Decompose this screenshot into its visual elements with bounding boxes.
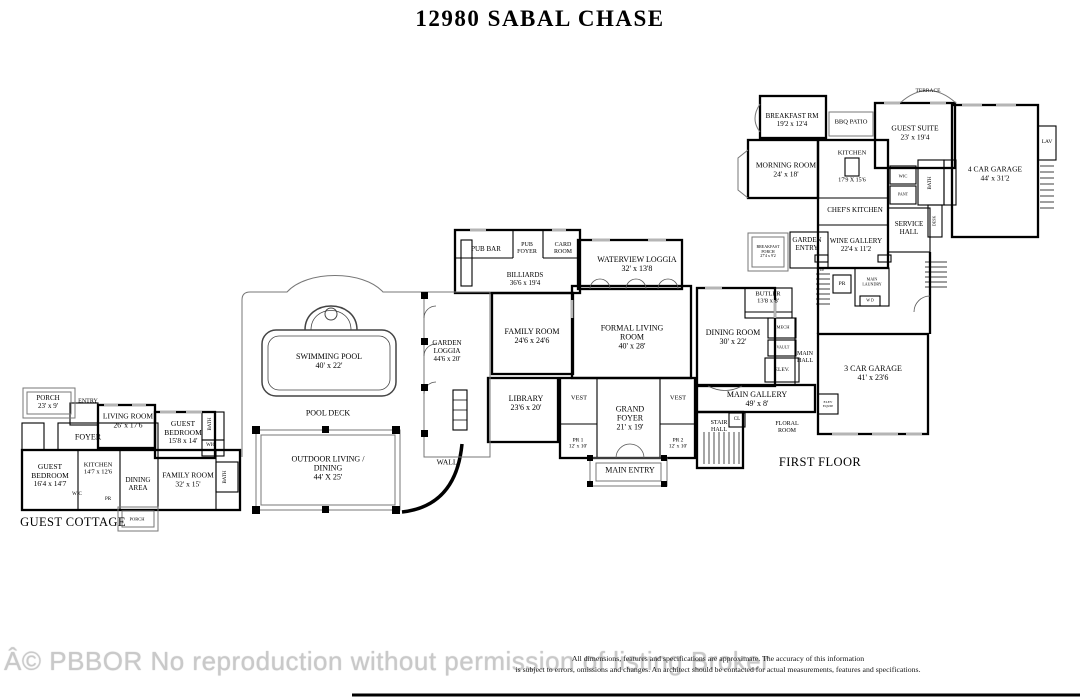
room-name: WIC bbox=[72, 492, 82, 498]
room-name: WATERVIEW LOGGIA bbox=[577, 255, 697, 264]
room-label-bath-cottage-1: BATH bbox=[208, 417, 214, 430]
room-dims: 24'6 x 24'6 bbox=[492, 336, 572, 345]
room-dims: 40' x 22' bbox=[279, 361, 379, 370]
room-name: KITCHEN bbox=[75, 462, 121, 469]
room-name: FLORAL ROOM bbox=[767, 421, 807, 435]
room-name: PORCH bbox=[129, 516, 144, 521]
room-name: CARD ROOM bbox=[548, 242, 578, 256]
room-label-wic-cottage: WIC bbox=[72, 492, 82, 498]
room-name: PR bbox=[105, 497, 111, 503]
room-label-main-laundry: MAIN LAUNDRY bbox=[858, 277, 886, 286]
room-name: W D bbox=[866, 299, 874, 304]
room-name: GUEST BEDROOM bbox=[158, 420, 208, 437]
room-name: OUTDOOR LIVING / DINING bbox=[283, 454, 373, 472]
room-name: BBQ PATIO bbox=[827, 118, 875, 125]
room-label-wall: WALL bbox=[437, 459, 458, 468]
room-dims: 36'6 x 19'4 bbox=[485, 280, 565, 288]
room-label-breakfast-rm: BREAKFAST RM19'2 x 12'4 bbox=[754, 113, 830, 129]
room-name: BATH bbox=[208, 417, 214, 430]
room-name: FORMAL LIVING ROOM bbox=[592, 323, 672, 341]
room-label-wd: W D bbox=[866, 299, 874, 304]
room-label-dining-area: DINING AREA bbox=[117, 477, 159, 493]
room-label-desk: DESK bbox=[933, 216, 938, 226]
room-label-chefs-kitchen: CHEF'S KITCHEN bbox=[810, 207, 900, 215]
room-label-wic-main: WIC bbox=[899, 173, 908, 178]
room-name: KITCHEN bbox=[825, 149, 879, 156]
room-name: VEST bbox=[571, 394, 587, 401]
room-label-breakfast-porch: BREAKFAST PORCH27'4 x 9'2 bbox=[751, 245, 785, 259]
room-label-garden-entry: GARDEN ENTRY bbox=[786, 237, 828, 253]
room-name: GARDEN ENTRY bbox=[786, 237, 828, 253]
room-name: FOYER bbox=[58, 432, 118, 441]
disclaimer-line2: is subject to errors, omissions and chan… bbox=[338, 665, 1080, 674]
room-name: CHEF'S KITCHEN bbox=[810, 207, 900, 215]
room-label-outdoor-living: OUTDOOR LIVING / DINING44' X 25' bbox=[283, 454, 373, 481]
room-label-pr1: PR 112' x 10' bbox=[561, 438, 595, 451]
room-label-pr-cottage: PR bbox=[105, 497, 111, 503]
room-name: PUB BAR bbox=[456, 246, 516, 254]
room-dims: 23' x 19'4 bbox=[883, 133, 947, 142]
room-dims: 44'6 x 20' bbox=[420, 356, 474, 364]
room-label-guest-bedroom-2: GUEST BEDROOM16'4 x 14'7 bbox=[24, 463, 76, 489]
room-label-living-room: LIVING ROOM26' x 17'6 bbox=[96, 412, 160, 429]
room-name: BATH bbox=[928, 176, 934, 189]
room-label-terrace: TERRACE bbox=[915, 88, 940, 94]
room-label-kitchen-main: KITCHEN bbox=[825, 149, 879, 156]
room-dims: 27'4 x 9'2 bbox=[751, 254, 785, 259]
room-label-wine-gallery: WINE GALLERY22'4 x 11'2 bbox=[823, 238, 889, 254]
room-label-lav: LAV bbox=[1042, 139, 1053, 145]
room-label-formal-living: FORMAL LIVING ROOM40' x 28' bbox=[592, 323, 672, 350]
room-name: CL bbox=[734, 417, 740, 423]
room-label-cl: CL bbox=[734, 417, 740, 423]
room-label-mech: MECH bbox=[776, 324, 789, 329]
room-label-bbq-patio: BBQ PATIO bbox=[827, 118, 875, 125]
room-name: GUEST BEDROOM bbox=[24, 463, 76, 480]
room-name: GARDEN LOGGIA bbox=[420, 340, 474, 356]
room-label-pr2: PR 212' x 10' bbox=[661, 438, 695, 451]
room-label-card-room: CARD ROOM bbox=[548, 242, 578, 256]
first-floor-label: FIRST FLOOR bbox=[779, 455, 861, 469]
room-label-elev: ELEV. bbox=[775, 367, 790, 373]
disclaimer-line1: All dimensions, features and specificati… bbox=[338, 654, 1080, 663]
room-name: BATH bbox=[223, 470, 229, 483]
room-dims: 30' x 22' bbox=[699, 337, 767, 346]
room-dims: 22'4 x 11'2 bbox=[823, 246, 889, 254]
floor-plan-walls bbox=[0, 0, 1080, 699]
room-label-wic-cottage-right: WIC bbox=[206, 443, 216, 449]
room-label-garage4: 4 CAR GARAGE44' x 31'2 bbox=[961, 165, 1029, 182]
room-name: PR bbox=[839, 281, 846, 287]
room-label-morning-room: MORNING ROOM24' x 18' bbox=[747, 161, 825, 178]
room-name: ENTRY bbox=[70, 399, 106, 406]
room-name: ELEV. bbox=[775, 367, 790, 373]
room-name: 3 CAR GARAGE bbox=[833, 364, 913, 373]
room-label-porch-cottage: PORCH23' x 9' bbox=[21, 395, 75, 411]
room-name: MAIN ENTRY bbox=[595, 465, 665, 474]
room-label-library: LIBRARY23'6 x 20' bbox=[491, 394, 561, 412]
room-label-main-gallery: MAIN GALLERY49' x 8' bbox=[712, 390, 802, 408]
room-name: MAIN HALL bbox=[790, 351, 820, 365]
room-name: STAIR HALL bbox=[704, 420, 734, 434]
room-name: WIC bbox=[899, 173, 908, 178]
room-dims: 21' x 19' bbox=[605, 423, 655, 432]
room-dims: 41' x 23'6 bbox=[833, 373, 913, 382]
room-name: DESK bbox=[933, 216, 938, 226]
room-name: BUTLER bbox=[745, 291, 791, 298]
room-label-main-hall: MAIN HALL bbox=[790, 351, 820, 365]
room-dims: 40' x 28' bbox=[592, 342, 672, 351]
room-label-dining-room: DINING ROOM30' x 22' bbox=[699, 328, 767, 346]
room-name: FAMILY ROOM bbox=[492, 327, 572, 336]
room-label-grand-foyer: GRAND FOYER21' x 19' bbox=[605, 404, 655, 431]
room-label-bath-main: BATH bbox=[928, 176, 934, 189]
room-label-stair-hall: STAIR HALL bbox=[704, 420, 734, 434]
room-name: PUB FOYER bbox=[512, 242, 542, 256]
room-name: DINING ROOM bbox=[699, 328, 767, 337]
room-dims: 32' x 15' bbox=[157, 480, 219, 489]
room-label-guest-bedroom-1: GUEST BEDROOM15'8 x 14' bbox=[158, 420, 208, 446]
room-label-bath-cottage-2: BATH bbox=[223, 470, 229, 483]
room-label-butler: BUTLER13'8 x 8' bbox=[745, 291, 791, 306]
room-label-pub-foyer: PUB FOYER bbox=[512, 242, 542, 256]
room-name: MAIN LAUNDRY bbox=[858, 277, 886, 286]
room-dims: 17'9 X 15'6 bbox=[825, 178, 879, 185]
room-name: VEST bbox=[670, 394, 686, 401]
room-label-service-hall: SERVICE HALL bbox=[887, 221, 931, 237]
room-name: SWIMMING POOL bbox=[279, 352, 379, 361]
room-label-pr-main: PR bbox=[839, 281, 846, 287]
room-dims: 26' x 17'6 bbox=[96, 421, 160, 430]
room-label-family-room: FAMILY ROOM24'6 x 24'6 bbox=[492, 327, 572, 345]
floor-plan-canvas: 12980 SABAL CHASE bbox=[0, 0, 1080, 699]
room-label-kitchen-cottage: KITCHEN14'7 x 12'6 bbox=[75, 462, 121, 477]
room-dims: 16'4 x 14'7 bbox=[24, 480, 76, 489]
room-name: LAV bbox=[1042, 139, 1053, 145]
room-label-waterview-loggia: WATERVIEW LOGGIA32' x 13'8 bbox=[577, 255, 697, 273]
room-label-pool-deck: POOL DECK bbox=[288, 408, 368, 417]
room-dims: 19'2 x 12'4 bbox=[754, 121, 830, 129]
room-name: MECH bbox=[776, 324, 789, 329]
room-label-floral-room: FLORAL ROOM bbox=[767, 421, 807, 435]
room-dims: 24' x 18' bbox=[747, 170, 825, 179]
room-name: LIBRARY bbox=[491, 394, 561, 403]
room-dims: 44' x 31'2 bbox=[961, 174, 1029, 183]
room-name: WIC bbox=[206, 443, 216, 449]
room-label-elev-equip: ELEV EQUIP bbox=[819, 400, 837, 408]
room-label-kitchen-main-dims: 17'9 X 15'6 bbox=[825, 178, 879, 185]
room-dims: 49' x 8' bbox=[712, 399, 802, 408]
interior-walls bbox=[22, 126, 1056, 510]
room-label-swimming-pool: SWIMMING POOL40' x 22' bbox=[279, 352, 379, 370]
room-name: VAULT bbox=[777, 346, 790, 351]
room-label-porch-bottom: PORCH bbox=[129, 516, 144, 521]
room-label-pant: PANT bbox=[898, 193, 908, 198]
room-dims: 23' x 9' bbox=[21, 403, 75, 411]
room-label-up: UP bbox=[820, 268, 824, 272]
room-label-entry: ENTRY bbox=[70, 399, 106, 406]
room-name: GRAND FOYER bbox=[605, 404, 655, 422]
room-dims: 23'6 x 20' bbox=[491, 403, 561, 412]
room-label-guest-suite: GUEST SUITE23' x 19'4 bbox=[883, 124, 947, 141]
room-dims: 13'8 x 8' bbox=[745, 298, 791, 305]
room-dims: 12' x 10' bbox=[661, 444, 695, 450]
room-name: POOL DECK bbox=[288, 408, 368, 417]
room-label-garage3: 3 CAR GARAGE41' x 23'6 bbox=[833, 364, 913, 382]
room-name: PANT bbox=[898, 193, 908, 198]
room-label-foyer: FOYER bbox=[58, 432, 118, 441]
room-name: MAIN GALLERY bbox=[712, 390, 802, 399]
room-dims: 44' X 25' bbox=[283, 473, 373, 482]
room-label-garden-loggia: GARDEN LOGGIA44'6 x 20' bbox=[420, 340, 474, 364]
room-label-pub-bar: PUB BAR bbox=[456, 246, 516, 254]
room-name: TERRACE bbox=[915, 88, 940, 94]
guest-cottage-label: GUEST COTTAGE bbox=[20, 515, 126, 529]
room-name: WALL bbox=[437, 459, 458, 468]
room-dims: 12' x 10' bbox=[561, 444, 595, 450]
room-label-vest-left: VEST bbox=[571, 394, 587, 401]
room-label-vest-right: VEST bbox=[670, 394, 686, 401]
room-name: SERVICE HALL bbox=[887, 221, 931, 237]
exterior-walls bbox=[22, 96, 1038, 512]
room-dims: 15'8 x 14' bbox=[158, 437, 208, 446]
room-name: ELEV EQUIP bbox=[819, 400, 837, 408]
room-name: DINING AREA bbox=[117, 477, 159, 493]
room-dims: 14'7 x 12'6 bbox=[75, 469, 121, 476]
stair-treads bbox=[453, 166, 1054, 464]
room-name: UP bbox=[820, 268, 824, 272]
room-label-billiards: BILLIARDS36'6 x 19'4 bbox=[485, 272, 565, 288]
room-label-main-entry: MAIN ENTRY bbox=[595, 465, 665, 474]
room-dims: 32' x 13'8 bbox=[577, 264, 697, 273]
room-label-family-room-cottage: FAMILY ROOM32' x 15' bbox=[157, 471, 219, 488]
room-label-vault: VAULT bbox=[777, 346, 790, 351]
